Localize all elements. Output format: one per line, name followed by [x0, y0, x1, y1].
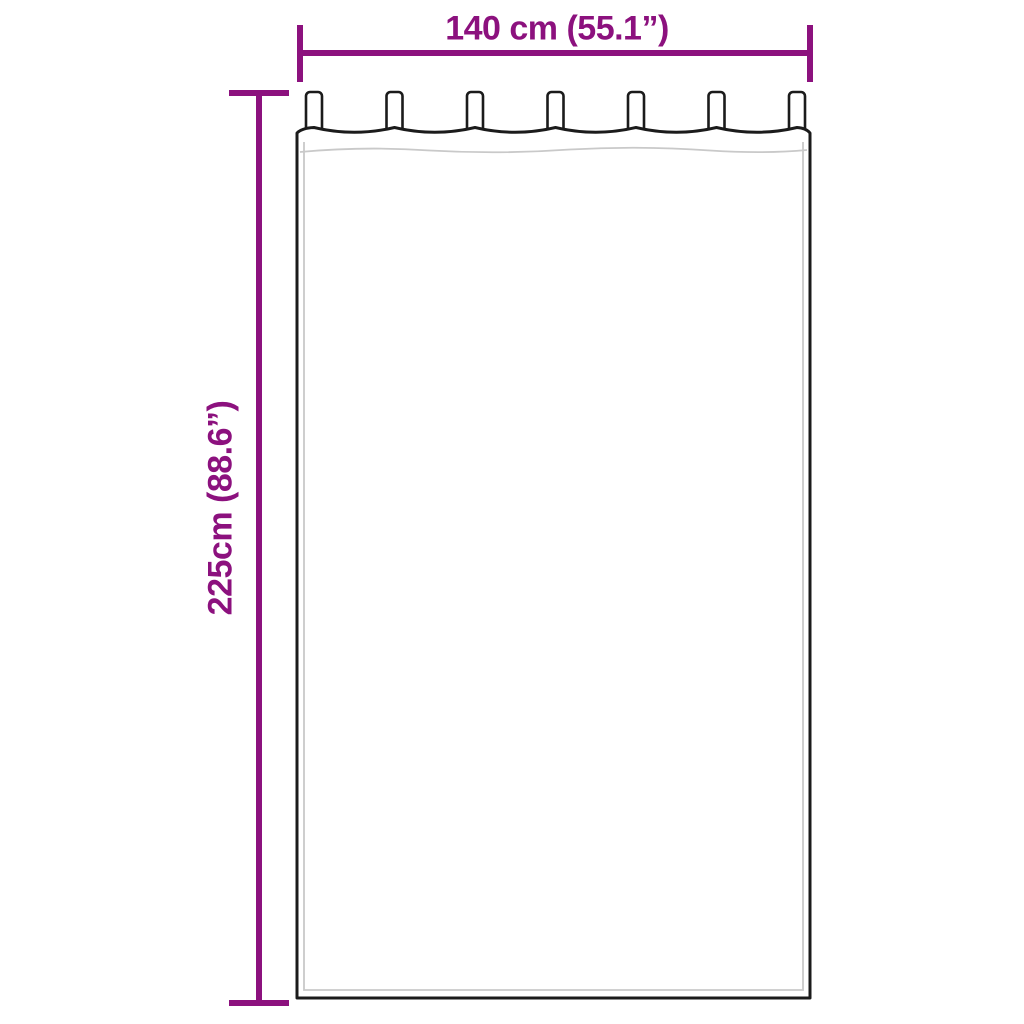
height-dimension-label: 225cm (88.6”): [202, 401, 241, 616]
curtain-line-drawing: [0, 0, 1024, 1024]
curtain-panel-outline: [297, 128, 810, 999]
dimension-diagram-canvas: 140 cm (55.1”) 225cm (88.6”): [0, 0, 1024, 1024]
width-dimension-label: 140 cm (55.1”): [445, 10, 669, 49]
